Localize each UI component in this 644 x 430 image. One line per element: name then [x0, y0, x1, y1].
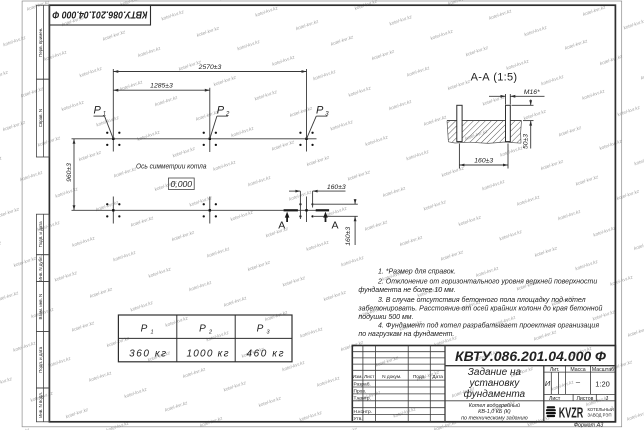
svg-text:Подп. и дата: Подп. и дата — [38, 346, 43, 372]
svg-text:P: P — [94, 104, 102, 116]
svg-text:Перв. примен.: Перв. примен. — [38, 28, 43, 57]
svg-text:kotel-kvr.kz: kotel-kvr.kz — [616, 188, 640, 201]
svg-text:kotel-kvr.kz: kotel-kvr.kz — [264, 310, 288, 323]
svg-text:160±3: 160±3 — [474, 158, 493, 165]
svg-text:kotel-kvr.kz: kotel-kvr.kz — [79, 66, 103, 79]
svg-text:установку: установку — [469, 378, 521, 389]
svg-text:kotel-kvr.kz: kotel-kvr.kz — [534, 245, 558, 258]
svg-text:фундамента не более 10 мм.: фундамента не более 10 мм. — [358, 286, 455, 294]
svg-text:kotel-kvr.kz: kotel-kvr.kz — [282, 275, 306, 288]
svg-text:kotel-kvr.kz: kotel-kvr.kz — [237, 39, 261, 52]
svg-text:kotel-kvr.kz: kotel-kvr.kz — [265, 226, 289, 239]
svg-text:kotel-kvr.kz: kotel-kvr.kz — [54, 270, 78, 283]
svg-text:kotel-kvr.kz: kotel-kvr.kz — [112, 250, 136, 263]
svg-text:kotel-kvr.kz: kotel-kvr.kz — [640, 68, 644, 81]
svg-text:по нагрузкам на фундамент.: по нагрузкам на фундамент. — [358, 330, 454, 338]
svg-text:kotel-kvr.kz: kotel-kvr.kz — [212, 159, 236, 172]
svg-text:kotel-kvr.kz: kotel-kvr.kz — [102, 29, 126, 42]
svg-text:kotel-kvr.kz: kotel-kvr.kz — [540, 74, 564, 87]
svg-text:kotel-kvr.kz: kotel-kvr.kz — [430, 28, 454, 41]
svg-text:kotel-kvr.kz: kotel-kvr.kz — [626, 409, 644, 422]
svg-text:Лист: Лист — [549, 396, 561, 402]
svg-text:kotel-kvr.kz: kotel-kvr.kz — [347, 169, 371, 182]
svg-text:КВ-1,0 КБ (К): КВ-1,0 КБ (К) — [478, 409, 511, 415]
svg-text:kotel-kvr.kz: kotel-kvr.kz — [524, 25, 548, 38]
svg-text:kotel-kvr.kz: kotel-kvr.kz — [516, 194, 540, 207]
svg-text:kotel-kvr.kz: kotel-kvr.kz — [19, 170, 43, 183]
svg-text:kotel-kvr.kz: kotel-kvr.kz — [593, 225, 617, 238]
svg-text:kotel-kvr.kz: kotel-kvr.kz — [20, 86, 44, 99]
svg-text:kotel-kvr.kz: kotel-kvr.kz — [130, 215, 154, 228]
svg-text:kotel-kvr.kz: kotel-kvr.kz — [182, 366, 206, 379]
svg-text:1: 1 — [606, 396, 609, 402]
svg-text:3: 3 — [267, 330, 271, 336]
svg-text:kotel-kvr.kz: kotel-kvr.kz — [196, 25, 220, 38]
svg-text:kotel-kvr.kz: kotel-kvr.kz — [61, 99, 85, 112]
svg-text:0,000: 0,000 — [171, 179, 193, 189]
svg-text:P: P — [217, 104, 225, 116]
svg-text:Пров.: Пров. — [354, 389, 367, 395]
svg-text:Н.контр.: Н.контр. — [354, 409, 372, 415]
svg-text:kotel-kvr.kz: kotel-kvr.kz — [499, 229, 523, 242]
svg-text:kotel-kvr.kz: kotel-kvr.kz — [365, 134, 389, 147]
svg-text:KVZR: KVZR — [559, 404, 584, 421]
svg-text:kotel-kvr.kz: kotel-kvr.kz — [371, 49, 395, 62]
svg-text:kotel-kvr.kz: kotel-kvr.kz — [0, 290, 20, 303]
svg-text:И: И — [545, 379, 551, 388]
svg-text:kotel-kvr.kz: kotel-kvr.kz — [12, 340, 36, 353]
svg-text:2570±3: 2570±3 — [198, 64, 222, 71]
svg-text:Справ. N: Справ. N — [38, 109, 43, 127]
svg-text:2. Отклонение от горизонтально: 2. Отклонение от горизонтального уровня … — [377, 278, 597, 286]
svg-text:kotel-kvr.kz: kotel-kvr.kz — [89, 286, 113, 299]
svg-text:kotel-kvr.kz: kotel-kvr.kz — [271, 139, 295, 152]
svg-text:kotel-kvr.kz: kotel-kvr.kz — [406, 65, 430, 78]
svg-text:kotel-kvr.kz: kotel-kvr.kz — [0, 206, 20, 219]
svg-text:А: А — [331, 219, 338, 231]
svg-text:kotel-kvr.kz: kotel-kvr.kz — [161, 9, 185, 22]
svg-text:фундамента: фундамента — [464, 388, 526, 400]
svg-text:kotel-kvr.kz: kotel-kvr.kz — [447, 78, 471, 91]
svg-text:kotel-kvr.kz: kotel-kvr.kz — [55, 186, 79, 199]
svg-text:kotel-kvr.kz: kotel-kvr.kz — [406, 149, 430, 162]
svg-text:160±3: 160±3 — [345, 227, 352, 246]
svg-text:Утв.: Утв. — [354, 416, 363, 422]
svg-text:kotel-kvr.kz: kotel-kvr.kz — [88, 370, 112, 383]
svg-text:kotel-kvr.kz: kotel-kvr.kz — [271, 54, 295, 67]
svg-text:kotel-kvr.kz: kotel-kvr.kz — [557, 209, 581, 222]
svg-text:kotel-kvr.kz: kotel-kvr.kz — [633, 239, 644, 252]
svg-text:kotel-kvr.kz: kotel-kvr.kz — [481, 179, 505, 192]
svg-text:Масса: Масса — [570, 367, 585, 373]
svg-text:kotel-kvr.kz: kotel-kvr.kz — [299, 326, 323, 339]
svg-text:kotel-kvr.kz: kotel-kvr.kz — [299, 410, 323, 423]
svg-text:Т.контр.: Т.контр. — [354, 395, 371, 401]
svg-text:kotel-kvr.kz: kotel-kvr.kz — [627, 325, 644, 338]
svg-text:160±3: 160±3 — [327, 184, 346, 191]
svg-text:kotel-kvr.kz: kotel-kvr.kz — [306, 154, 330, 167]
svg-text:360 кг: 360 кг — [129, 349, 166, 360]
svg-text:Инв. N дубл.: Инв. N дубл. — [38, 255, 43, 281]
svg-text:kotel-kvr.kz: kotel-kvr.kz — [13, 255, 37, 268]
svg-text:kotel-kvr.kz: kotel-kvr.kz — [213, 74, 237, 87]
svg-text:Ось симметрии котла: Ось симметрии котла — [136, 161, 207, 170]
svg-text:kotel-kvr.kz: kotel-kvr.kz — [289, 105, 313, 118]
svg-text:–: – — [576, 378, 581, 387]
svg-text:kotel-kvr.kz: kotel-kvr.kz — [148, 266, 172, 279]
svg-text:kotel-kvr.kz: kotel-kvr.kz — [540, 158, 564, 171]
svg-text:kotel-kvr.kz: kotel-kvr.kz — [71, 320, 95, 333]
svg-text:kotel-kvr.kz: kotel-kvr.kz — [43, 49, 67, 62]
svg-text:2: 2 — [208, 330, 212, 336]
svg-text:1: 1 — [151, 330, 154, 336]
svg-text:Разраб.: Разраб. — [354, 382, 371, 388]
svg-text:50±3: 50±3 — [523, 134, 530, 149]
svg-text:1285±3: 1285±3 — [150, 83, 173, 90]
svg-text:Листов: Листов — [577, 396, 594, 402]
svg-text:kotel-kvr.kz: kotel-kvr.kz — [171, 229, 195, 242]
svg-text:kotel-kvr.kz: kotel-kvr.kz — [0, 155, 3, 168]
svg-text:kotel-kvr.kz: kotel-kvr.kz — [506, 58, 530, 71]
svg-text:1:20: 1:20 — [595, 379, 610, 388]
svg-text:Котел водогрейный: Котел водогрейный — [469, 402, 520, 409]
svg-text:Формат А3: Формат А3 — [574, 422, 604, 428]
svg-text:kotel-kvr.kz: kotel-kvr.kz — [441, 165, 465, 178]
svg-text:kotel-kvr.kz: kotel-kvr.kz — [113, 166, 137, 179]
svg-text:kotel-kvr.kz: kotel-kvr.kz — [254, 89, 278, 102]
svg-text:kotel-kvr.kz: kotel-kvr.kz — [2, 120, 26, 133]
svg-text:М16*: М16* — [524, 89, 540, 96]
svg-text:3. В случае отсутствия бетонно: 3. В случае отсутствия бетонного пола пл… — [378, 296, 586, 304]
svg-text:kotel-kvr.kz: kotel-kvr.kz — [172, 146, 196, 159]
svg-text:КВТУ.086.201.04.000 Ф: КВТУ.086.201.04.000 Ф — [455, 349, 607, 364]
svg-text:kotel-kvr.kz: kotel-kvr.kz — [375, 355, 399, 368]
svg-text:1. *Размер для справок.: 1. *Размер для справок. — [378, 267, 456, 275]
svg-text:960±3: 960±3 — [66, 163, 73, 182]
svg-text:kotel-kvr.kz: kotel-kvr.kz — [348, 85, 372, 98]
svg-text:kotel-kvr.kz: kotel-kvr.kz — [623, 18, 644, 31]
svg-text:kotel-kvr.kz: kotel-kvr.kz — [499, 145, 523, 158]
svg-text:kotel-kvr.kz: kotel-kvr.kz — [223, 295, 247, 308]
svg-text:kotel-kvr.kz: kotel-kvr.kz — [258, 395, 282, 408]
svg-text:по техническому заданию: по техническому заданию — [461, 416, 528, 422]
svg-text:kotel-kvr.kz: kotel-kvr.kz — [388, 99, 412, 112]
svg-text:подушки 500 мм.: подушки 500 мм. — [358, 313, 413, 321]
svg-text:N докум.: N докум. — [382, 374, 401, 380]
svg-text:kotel-kvr.kz: kotel-kvr.kz — [465, 45, 489, 58]
svg-text:kotel-kvr.kz: kotel-kvr.kz — [188, 280, 212, 293]
svg-text:kotel-kvr.kz: kotel-kvr.kz — [154, 95, 178, 108]
svg-text:kotel-kvr.kz: kotel-kvr.kz — [26, 0, 50, 12]
svg-text:Задание на: Задание на — [468, 367, 522, 378]
svg-text:Подп. и дата: Подп. и дата — [38, 221, 43, 247]
svg-text:P: P — [199, 324, 206, 335]
svg-text:kotel-kvr.kz: kotel-kvr.kz — [440, 249, 464, 262]
svg-text:P: P — [141, 324, 148, 335]
svg-text:kotel-kvr.kz: kotel-kvr.kz — [2, 35, 26, 48]
svg-text:kotel-kvr.kz: kotel-kvr.kz — [575, 259, 599, 272]
svg-text:kotel-kvr.kz: kotel-kvr.kz — [137, 129, 161, 142]
svg-text:460 кг: 460 кг — [247, 349, 284, 360]
svg-text:kotel-kvr.kz: kotel-kvr.kz — [0, 376, 13, 389]
svg-text:kotel-kvr.kz: kotel-kvr.kz — [137, 45, 161, 58]
svg-text:kotel-kvr.kz: kotel-kvr.kz — [617, 105, 641, 118]
svg-text:kotel-kvr.kz: kotel-kvr.kz — [71, 235, 95, 248]
svg-text:kotel-kvr.kz: kotel-kvr.kz — [164, 400, 188, 413]
svg-text:kotel-kvr.kz: kotel-kvr.kz — [306, 239, 330, 252]
svg-text:kotel-kvr.kz: kotel-kvr.kz — [634, 154, 644, 167]
svg-text:kotel-kvr.kz: kotel-kvr.kz — [488, 8, 512, 21]
svg-text:kotel-kvr.kz: kotel-kvr.kz — [206, 246, 230, 259]
svg-text:Инв. N подл.: Инв. N подл. — [38, 392, 43, 418]
svg-text:kotel-kvr.kz: kotel-kvr.kz — [533, 329, 557, 342]
svg-text:Масштаб: Масштаб — [592, 367, 614, 373]
svg-text:kotel-kvr.kz: kotel-kvr.kz — [458, 214, 482, 227]
svg-text:kotel-kvr.kz: kotel-kvr.kz — [0, 69, 9, 82]
svg-text:kotel-kvr.kz: kotel-kvr.kz — [316, 375, 340, 388]
svg-text:kotel-kvr.kz: kotel-kvr.kz — [575, 174, 599, 187]
svg-text:Лит.: Лит. — [550, 367, 560, 373]
svg-text:kotel-kvr.kz: kotel-kvr.kz — [523, 108, 547, 121]
svg-text:4. Фундамент под котел разраба: 4. Фундамент под котел разрабатывает про… — [378, 321, 599, 329]
svg-text:Подп.: Подп. — [413, 374, 426, 380]
svg-text:kotel-kvr.kz: kotel-kvr.kz — [230, 209, 254, 222]
svg-text:kotel-kvr.kz: kotel-kvr.kz — [547, 0, 571, 1]
svg-text:kotel-kvr.kz: kotel-kvr.kz — [582, 4, 606, 17]
svg-text:kotel-kvr.kz: kotel-kvr.kz — [330, 119, 354, 132]
svg-text:kotel-kvr.kz: kotel-kvr.kz — [475, 265, 499, 278]
svg-text:kotel-kvr.kz: kotel-kvr.kz — [0, 240, 2, 253]
svg-text:А-А (1:5): А-А (1:5) — [471, 72, 518, 84]
svg-text:kotel-kvr.kz: kotel-kvr.kz — [65, 407, 89, 420]
svg-text:P: P — [316, 104, 324, 116]
svg-text:ЗАВОД РЭП: ЗАВОД РЭП — [588, 412, 612, 417]
svg-text:Лист: Лист — [364, 374, 375, 380]
svg-text:kotel-kvr.kz: kotel-kvr.kz — [330, 34, 354, 47]
svg-text:kotel-kvr.kz: kotel-kvr.kz — [550, 379, 574, 392]
svg-text:kotel-kvr.kz: kotel-kvr.kz — [364, 219, 388, 232]
svg-text:kotel-kvr.kz: kotel-kvr.kz — [423, 199, 447, 212]
svg-text:kotel-kvr.kz: kotel-kvr.kz — [223, 380, 247, 393]
svg-text:А: А — [278, 219, 285, 231]
svg-text:kotel-kvr.kz: kotel-kvr.kz — [295, 19, 319, 32]
svg-text:kotel-kvr.kz: kotel-kvr.kz — [558, 125, 582, 138]
svg-text:kotel-kvr.kz: kotel-kvr.kz — [599, 138, 623, 151]
svg-text:kotel-kvr.kz: kotel-kvr.kz — [423, 114, 447, 127]
svg-text:Изм.: Изм. — [352, 374, 362, 380]
svg-text:kotel-kvr.kz: kotel-kvr.kz — [130, 300, 154, 313]
svg-text:kotel-kvr.kz: kotel-kvr.kz — [399, 235, 423, 248]
svg-text:kotel-kvr.kz: kotel-kvr.kz — [78, 149, 102, 162]
svg-text:kotel-kvr.kz: kotel-kvr.kz — [255, 5, 279, 18]
svg-text:kotel-kvr.kz: kotel-kvr.kz — [323, 289, 347, 302]
svg-text:kotel-kvr.kz: kotel-kvr.kz — [564, 38, 588, 51]
svg-text:kotel-kvr.kz: kotel-kvr.kz — [247, 259, 271, 272]
svg-text:P: P — [257, 324, 264, 335]
svg-text:Дата: Дата — [432, 374, 443, 380]
svg-text:КВТУ.086.201.04.000 Ф: КВТУ.086.201.04.000 Ф — [52, 8, 147, 19]
svg-text:kotel-kvr.kz: kotel-kvr.kz — [599, 54, 623, 67]
svg-text:Взам. инв. N: Взам. инв. N — [38, 294, 43, 320]
svg-text:kotel-kvr.kz: kotel-kvr.kz — [382, 185, 406, 198]
svg-text:kotel-kvr.kz: kotel-kvr.kz — [124, 386, 148, 399]
svg-text:kotel-kvr.kz: kotel-kvr.kz — [247, 175, 271, 188]
svg-text:kotel-kvr.kz: kotel-kvr.kz — [581, 88, 605, 101]
svg-text:kotel-kvr.kz: kotel-kvr.kz — [230, 125, 254, 138]
svg-text:kotel-kvr.kz: kotel-kvr.kz — [312, 69, 336, 82]
svg-text:kotel-kvr.kz: kotel-kvr.kz — [47, 356, 71, 369]
svg-text:kotel-kvr.kz: kotel-kvr.kz — [389, 14, 413, 27]
svg-text:1000 кг: 1000 кг — [187, 349, 229, 360]
svg-text:kotel-kvr.kz: kotel-kvr.kz — [340, 255, 364, 268]
svg-text:забетонировать. Расстояние от: забетонировать. Расстояние от осей крайн… — [357, 305, 602, 313]
